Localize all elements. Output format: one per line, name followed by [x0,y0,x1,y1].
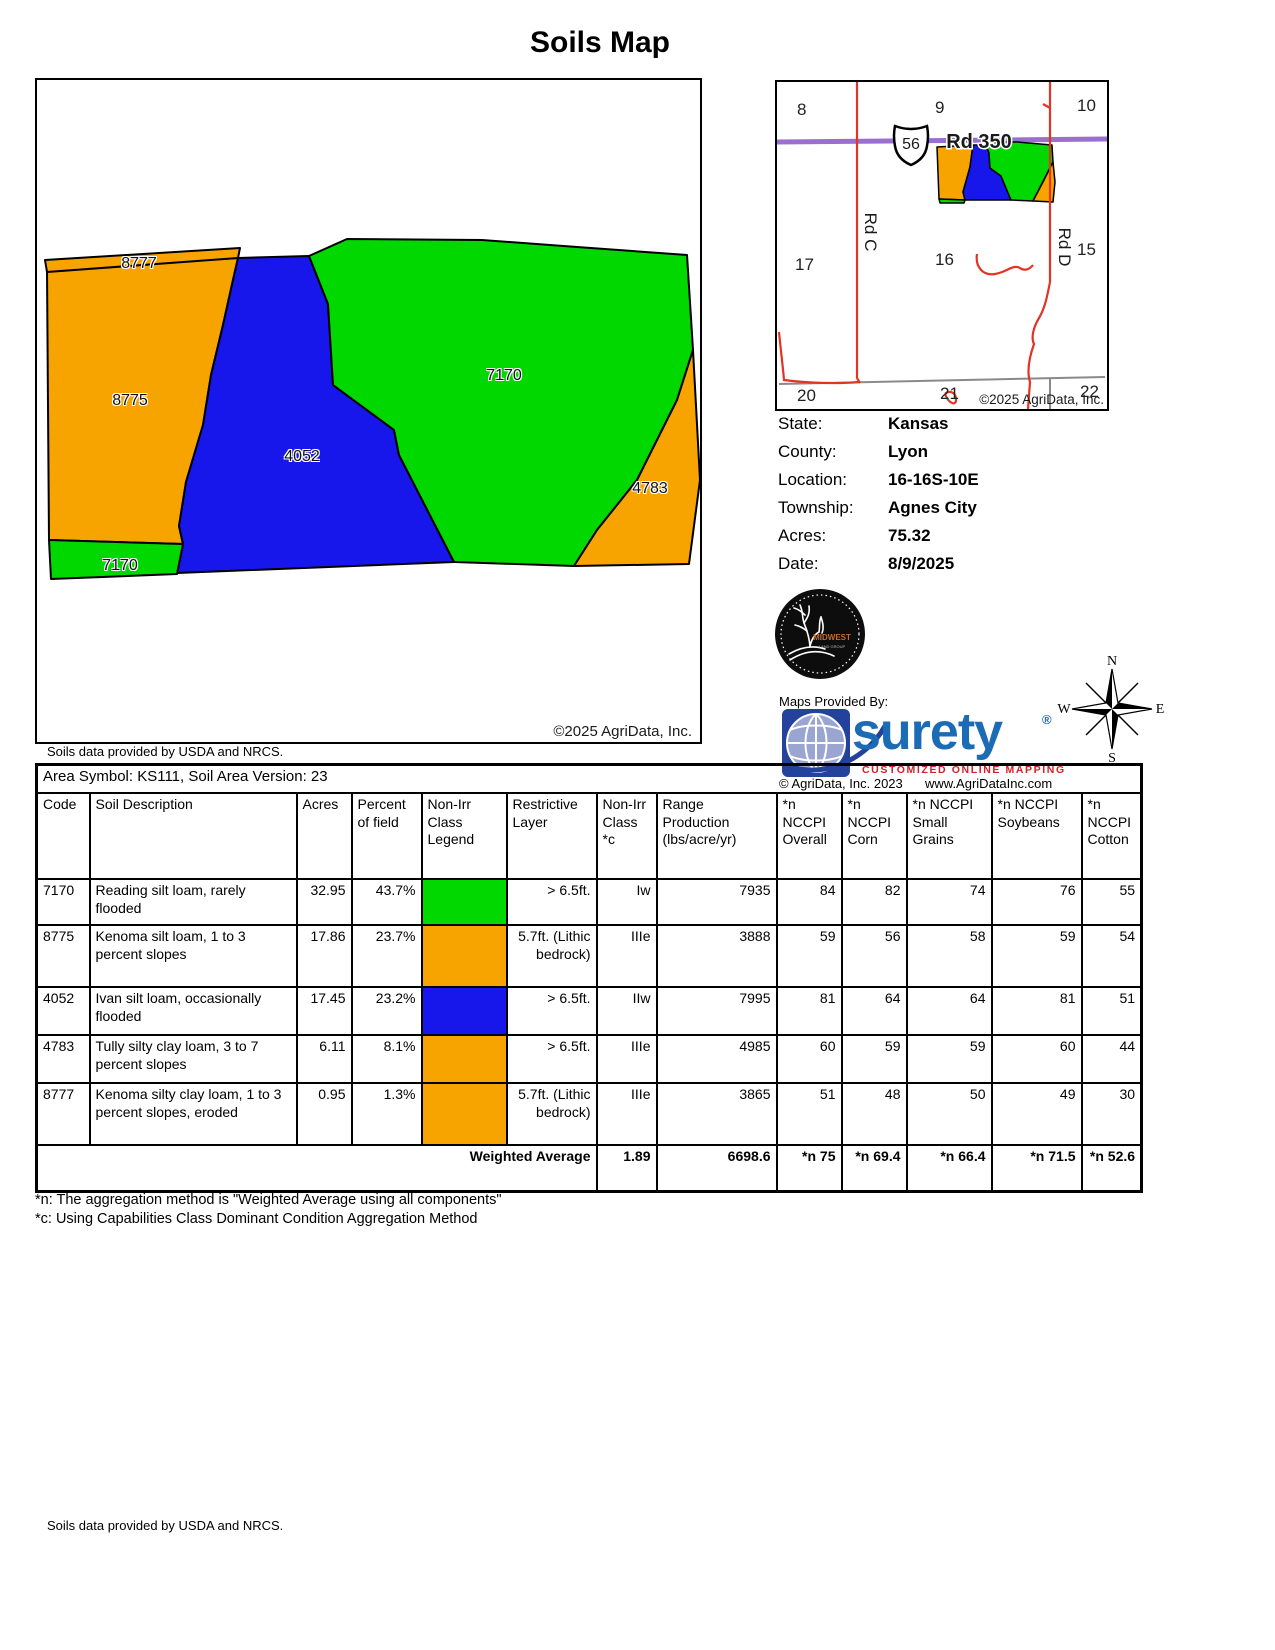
col-legend: Non-Irr Class Legend [422,793,507,879]
township-value: Agnes City [888,498,977,518]
cell-description: Ivan silt loam, occasionally flooded [90,987,297,1035]
cell-overall: 81 [777,987,842,1035]
column-header-row: Code Soil Description Acres Percent of f… [37,793,1142,879]
section-number-20: 20 [797,386,816,405]
compass-east-label: E [1156,702,1165,717]
cell-class: Iw [597,879,657,925]
cell-restrictive: 5.7ft. (Lithic bedrock) [507,1083,597,1145]
col-nccpi-corn: *n NCCPI Corn [842,793,907,879]
table-row-4783: 4783 Tully silty clay loam, 3 to 7 perce… [37,1035,1142,1083]
cell-class: IIIe [597,1083,657,1145]
col-code: Code [37,793,90,879]
red-squiggle [977,254,1033,274]
cell-acres: 17.86 [297,925,352,987]
road-label-rd350: Rd 350 [946,131,1012,153]
cell-description: Kenoma silty clay loam, 1 to 3 percent s… [90,1083,297,1145]
legend-swatch [422,987,507,1035]
cell-grains: 50 [907,1083,992,1145]
registered-mark: ® [1042,712,1052,727]
county-value: Lyon [888,442,928,462]
cell-percent: 1.3% [352,1083,422,1145]
date-label: Date: [778,554,883,574]
weighted-production: 6698.6 [657,1145,777,1191]
table-row-7170: 7170 Reading silt loam, rarely flooded 3… [37,879,1142,925]
main-soils-map: 8777 8775 4052 7170 4783 7170 ©2025 Agri… [35,78,702,744]
road-d-line [1028,82,1050,409]
deer-icon: MIDWEST LAND GROUP [774,588,866,680]
midwest-subtext: LAND GROUP [819,644,846,649]
state-value: Kansas [888,414,948,434]
cell-grains: 58 [907,925,992,987]
cell-percent: 43.7% [352,879,422,925]
cell-grains: 64 [907,987,992,1035]
cell-cotton: 54 [1082,925,1142,987]
location-value: 16-16S-10E [888,470,979,490]
usda-source-note: Soils data provided by USDA and NRCS. [47,744,283,759]
cell-cotton: 44 [1082,1035,1142,1083]
page-title: Soils Map [35,26,1165,60]
cell-corn: 48 [842,1083,907,1145]
midwest-land-group-logo: MIDWEST LAND GROUP [774,588,866,680]
cell-cotton: 30 [1082,1083,1142,1145]
cell-soybeans: 59 [992,925,1082,987]
compass-icon: N E S W [1056,652,1168,764]
cell-corn: 56 [842,925,907,987]
cell-code: 4052 [37,987,90,1035]
weighted-corn: *n 69.4 [842,1145,907,1191]
county-label: County: [778,442,883,462]
cell-overall: 84 [777,879,842,925]
cell-description: Kenoma silt loam, 1 to 3 percent slopes [90,925,297,987]
col-production: Range Production (lbs/acre/yr) [657,793,777,879]
col-nccpi-grains: *n NCCPI Small Grains [907,793,992,879]
township-label: Township: [778,498,883,518]
cell-grains: 74 [907,879,992,925]
cell-cotton: 55 [1082,879,1142,925]
weighted-grains: *n 66.4 [907,1145,992,1191]
cell-overall: 59 [777,925,842,987]
usda-footer-note: Soils data provided by USDA and NRCS. [47,1518,283,1533]
footnote-n: *n: The aggregation method is "Weighted … [35,1192,502,1208]
col-restrictive: Restrictive Layer [507,793,597,879]
cell-percent: 23.2% [352,987,422,1035]
cell-grains: 59 [907,1035,992,1083]
cell-restrictive: > 6.5ft. [507,987,597,1035]
cell-overall: 51 [777,1083,842,1145]
midwest-wordmark: MIDWEST [813,633,851,642]
inset-copyright: ©2025 AgriData, Inc. [979,392,1104,407]
legend-swatch [422,879,507,925]
location-label: Location: [778,470,883,490]
cell-percent: 23.7% [352,925,422,987]
section-number-17: 17 [795,255,814,274]
section-number-8: 8 [797,100,806,119]
weighted-class: 1.89 [597,1145,657,1191]
cell-code: 7170 [37,879,90,925]
compass-rose: N E S W [1056,652,1168,764]
highway-350-line [777,139,1107,142]
acres-label: Acres: [778,526,883,546]
cell-corn: 64 [842,987,907,1035]
cell-soybeans: 60 [992,1035,1082,1083]
col-percent: Percent of field [352,793,422,879]
cell-description: Reading silt loam, rarely flooded [90,879,297,925]
cell-overall: 60 [777,1035,842,1083]
cell-restrictive: > 6.5ft. [507,1035,597,1083]
cell-production: 7995 [657,987,777,1035]
compass-west-label: W [1057,702,1071,717]
weighted-average-row: Weighted Average 1.89 6698.6 *n 75 *n 69… [37,1145,1142,1191]
section-number-15: 15 [1077,240,1096,259]
cell-soybeans: 49 [992,1083,1082,1145]
cell-production: 7935 [657,879,777,925]
cell-code: 8777 [37,1083,90,1145]
cell-restrictive: 5.7ft. (Lithic bedrock) [507,925,597,987]
map-label-7170: 7170 [486,367,522,385]
col-nccpi-soybeans: *n NCCPI Soybeans [992,793,1082,879]
red-road-bottom-left [779,332,859,383]
footnote-c: *c: Using Capabilities Class Dominant Co… [35,1211,478,1227]
state-label: State: [778,414,883,434]
map-copyright: ©2025 AgriData, Inc. [553,723,692,740]
cell-production: 3865 [657,1083,777,1145]
cell-acres: 6.11 [297,1035,352,1083]
map-label-7170-strip: 7170 [102,557,138,575]
cell-corn: 59 [842,1035,907,1083]
cell-percent: 8.1% [352,1035,422,1083]
compass-north-label: N [1107,654,1117,669]
area-symbol-header: Area Symbol: KS111, Soil Area Version: 2… [37,765,1142,794]
road-label-rd-d: Rd D [1055,228,1074,267]
cell-restrictive: > 6.5ft. [507,879,597,925]
soils-map-report-page: Soils Map 8777 8775 4052 7170 4783 7170 … [0,0,1275,1650]
road-c-line [857,82,860,383]
section-number-16: 16 [935,250,954,269]
cell-corn: 82 [842,879,907,925]
cell-cotton: 51 [1082,987,1142,1035]
cell-code: 4783 [37,1035,90,1083]
cell-description: Tully silty clay loam, 3 to 7 percent sl… [90,1035,297,1083]
cell-acres: 32.95 [297,879,352,925]
map-label-8777: 8777 [121,255,157,273]
soils-map-canvas [37,80,700,742]
section-number-10: 10 [1077,96,1096,115]
cell-soybeans: 81 [992,987,1082,1035]
weighted-average-label: Weighted Average [37,1145,597,1191]
cell-code: 8775 [37,925,90,987]
weighted-cotton: *n 52.6 [1082,1145,1142,1191]
table-row-4052: 4052 Ivan silt loam, occasionally floode… [37,987,1142,1035]
acres-value: 75.32 [888,526,931,546]
weighted-soybeans: *n 71.5 [992,1145,1082,1191]
col-nccpi-overall: *n NCCPI Overall [777,793,842,879]
col-nonirr-class: Non-Irr Class *c [597,793,657,879]
cell-production: 4985 [657,1035,777,1083]
surety-wordmark: surety [852,702,1002,762]
inset-map-canvas: 56 Rd 350 Rd C Rd D 8 9 10 17 16 15 20 2… [777,82,1107,409]
legend-swatch [422,1083,507,1145]
section-number-21: 21 [940,384,959,403]
table-row-8777: 8777 Kenoma silty clay loam, 1 to 3 perc… [37,1083,1142,1145]
mini-region-7170-strip [939,199,965,203]
col-description: Soil Description [90,793,297,879]
col-nccpi-cotton: *n NCCPI Cotton [1082,793,1142,879]
weighted-overall: *n 75 [777,1145,842,1191]
cell-acres: 0.95 [297,1083,352,1145]
legend-swatch [422,925,507,987]
cell-class: IIw [597,987,657,1035]
map-label-4052: 4052 [284,448,320,466]
soils-table-container: Area Symbol: KS111, Soil Area Version: 2… [35,763,1143,1193]
cell-soybeans: 76 [992,879,1082,925]
inset-location-map: 56 Rd 350 Rd C Rd D 8 9 10 17 16 15 20 2… [775,80,1109,411]
cell-class: IIIe [597,1035,657,1083]
section-number-9: 9 [935,98,944,117]
cell-production: 3888 [657,925,777,987]
date-value: 8/9/2025 [888,554,954,574]
map-label-8775: 8775 [112,392,148,410]
soils-table: Area Symbol: KS111, Soil Area Version: 2… [35,763,1143,1193]
cell-acres: 17.45 [297,987,352,1035]
col-acres: Acres [297,793,352,879]
table-row-8775: 8775 Kenoma silt loam, 1 to 3 percent sl… [37,925,1142,987]
shield-number: 56 [902,136,920,153]
legend-swatch [422,1035,507,1083]
map-label-4783: 4783 [632,480,668,498]
road-label-rd-c: Rd C [861,213,880,252]
cell-class: IIIe [597,925,657,987]
